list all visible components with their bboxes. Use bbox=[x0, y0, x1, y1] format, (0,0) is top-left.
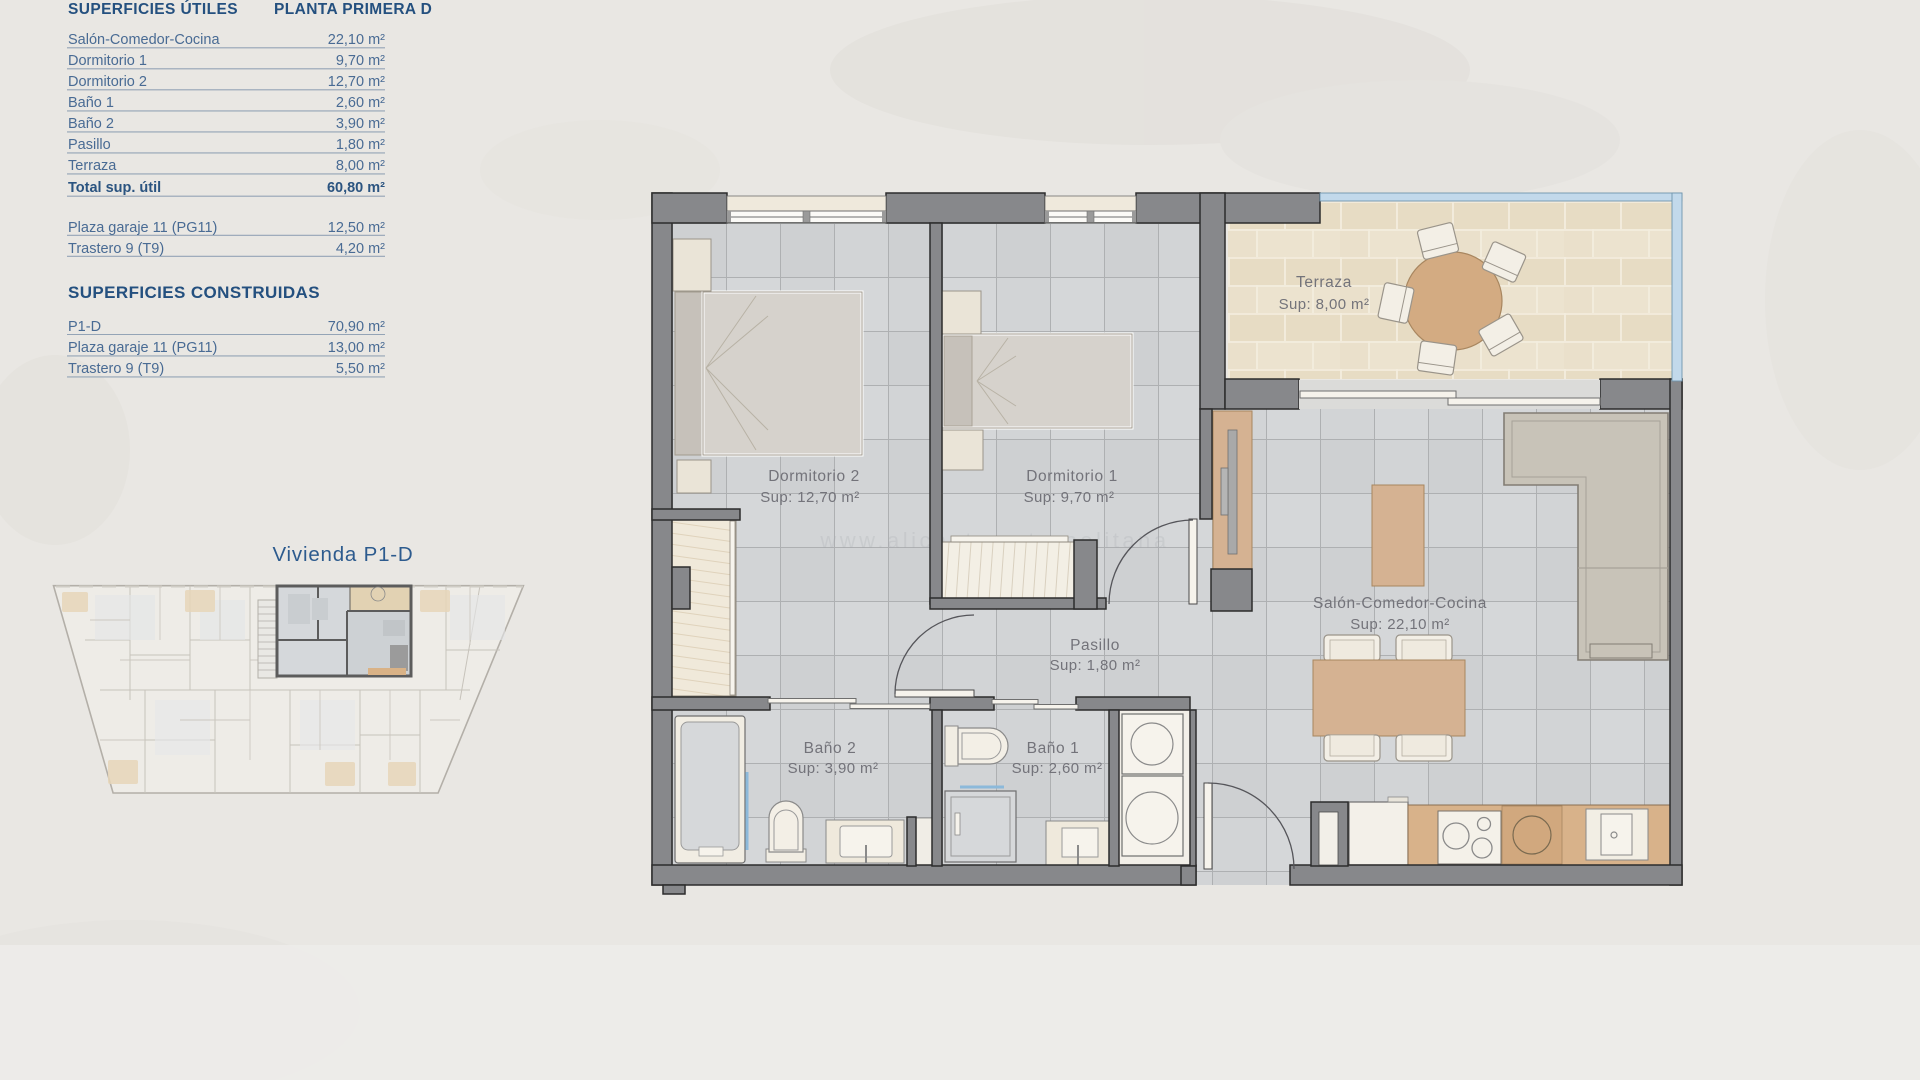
svg-text:4,20 m²: 4,20 m² bbox=[336, 241, 385, 257]
svg-text:PLANTA PRIMERA D: PLANTA PRIMERA D bbox=[274, 1, 432, 18]
svg-text:13,00 m²: 13,00 m² bbox=[328, 340, 385, 356]
svg-text:60,80 m²: 60,80 m² bbox=[327, 180, 385, 196]
svg-text:Baño 2: Baño 2 bbox=[68, 116, 114, 132]
svg-text:Dormitorio 2: Dormitorio 2 bbox=[768, 468, 860, 485]
svg-text:Dormitorio 1: Dormitorio 1 bbox=[68, 53, 147, 69]
svg-text:5,50 m²: 5,50 m² bbox=[336, 361, 385, 377]
svg-text:12,70 m²: 12,70 m² bbox=[328, 74, 385, 90]
svg-text:Sup: 12,70 m²: Sup: 12,70 m² bbox=[760, 489, 859, 506]
svg-text:Sup: 2,60 m²: Sup: 2,60 m² bbox=[1012, 760, 1103, 777]
svg-text:Sup: 3,90 m²: Sup: 3,90 m² bbox=[788, 760, 879, 777]
svg-text:Sup: 1,80 m²: Sup: 1,80 m² bbox=[1050, 657, 1141, 674]
svg-text:2,60 m²: 2,60 m² bbox=[336, 95, 385, 111]
svg-text:Dormitorio 2: Dormitorio 2 bbox=[68, 74, 147, 90]
svg-text:Plaza garaje 11 (PG11): Plaza garaje 11 (PG11) bbox=[68, 340, 217, 356]
svg-text:Sup: 8,00 m²: Sup: 8,00 m² bbox=[1279, 296, 1370, 313]
svg-text:8,00 m²: 8,00 m² bbox=[336, 158, 385, 174]
svg-text:Salón-Comedor-Cocina: Salón-Comedor-Cocina bbox=[68, 32, 220, 48]
svg-text:Pasillo: Pasillo bbox=[68, 137, 111, 153]
svg-text:12,50 m²: 12,50 m² bbox=[328, 220, 385, 236]
svg-text:Baño 1: Baño 1 bbox=[1027, 740, 1080, 757]
svg-text:Sup: 22,10 m²: Sup: 22,10 m² bbox=[1350, 616, 1449, 633]
svg-text:Plaza garaje 11 (PG11): Plaza garaje 11 (PG11) bbox=[68, 220, 217, 236]
svg-text:9,70 m²: 9,70 m² bbox=[336, 53, 385, 69]
svg-text:Total sup. útil: Total sup. útil bbox=[68, 180, 161, 196]
svg-text:Terraza: Terraza bbox=[1296, 274, 1352, 291]
svg-text:70,90 m²: 70,90 m² bbox=[328, 319, 385, 335]
svg-text:Vivienda P1-D: Vivienda P1-D bbox=[272, 543, 413, 566]
svg-text:Baño 2: Baño 2 bbox=[804, 740, 857, 757]
svg-text:Pasillo: Pasillo bbox=[1070, 637, 1120, 654]
svg-text:Salón-Comedor-Cocina: Salón-Comedor-Cocina bbox=[1313, 595, 1487, 612]
svg-text:3,90 m²: 3,90 m² bbox=[336, 116, 385, 132]
svg-text:Baño 1: Baño 1 bbox=[68, 95, 114, 111]
svg-text:P1-D: P1-D bbox=[68, 319, 101, 335]
svg-text:Terraza: Terraza bbox=[68, 158, 117, 174]
svg-text:Trastero 9 (T9): Trastero 9 (T9) bbox=[68, 241, 164, 257]
svg-text:SUPERFICIES CONSTRUIDAS: SUPERFICIES CONSTRUIDAS bbox=[68, 283, 320, 302]
svg-text:SUPERFICIES ÚTILES: SUPERFICIES ÚTILES bbox=[68, 0, 238, 18]
svg-text:Dormitorio 1: Dormitorio 1 bbox=[1026, 468, 1118, 485]
svg-text:22,10 m²: 22,10 m² bbox=[328, 32, 385, 48]
svg-text:Sup: 9,70 m²: Sup: 9,70 m² bbox=[1024, 489, 1115, 506]
svg-text:Trastero 9 (T9): Trastero 9 (T9) bbox=[68, 361, 164, 377]
svg-text:1,80 m²: 1,80 m² bbox=[336, 137, 385, 153]
